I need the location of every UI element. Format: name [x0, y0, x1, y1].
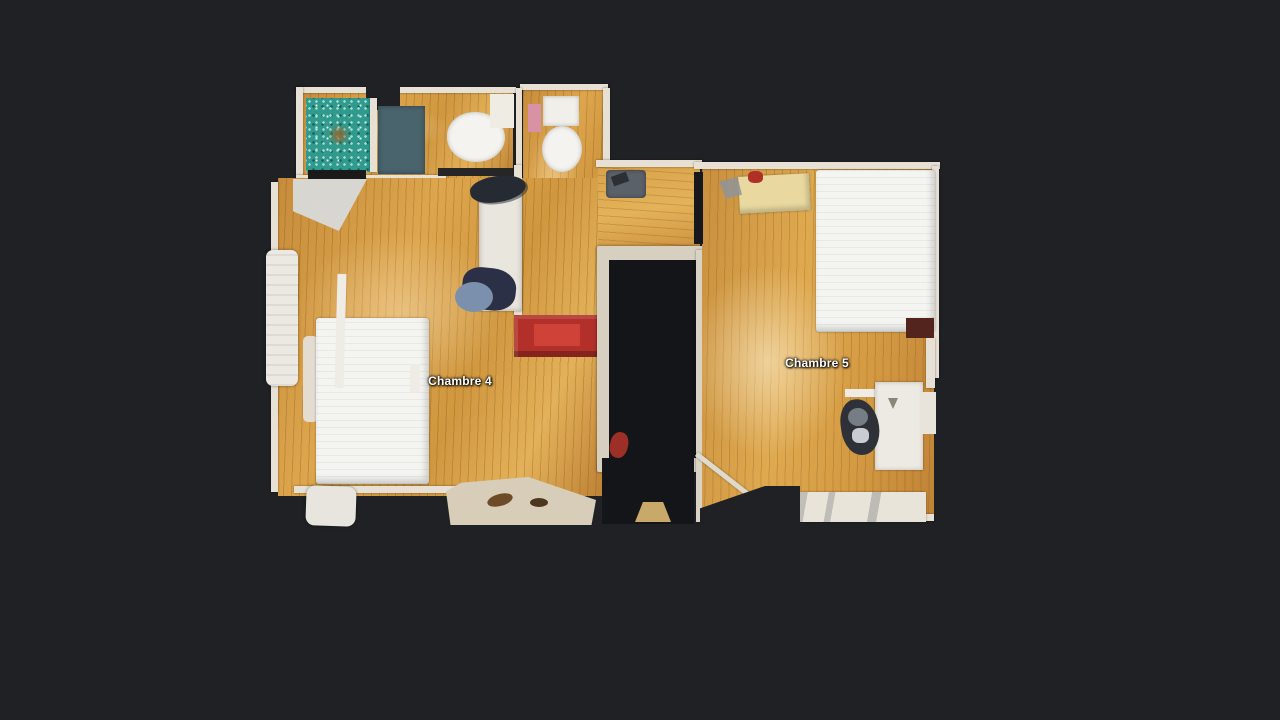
radiator — [305, 485, 356, 527]
shelf-radiator — [800, 492, 926, 522]
vanity-object — [530, 498, 548, 507]
shower-edge — [370, 98, 377, 172]
wall — [926, 338, 935, 388]
bed-mattress — [816, 170, 935, 332]
shower-tile-floor — [306, 98, 372, 172]
towel — [528, 104, 541, 132]
radiator — [266, 250, 298, 386]
wall — [520, 84, 608, 90]
sink — [543, 96, 579, 126]
bed-mattress — [316, 318, 429, 484]
wall — [596, 160, 702, 167]
room-label-chambre-4[interactable]: Chambre 4 — [412, 374, 508, 388]
wall — [694, 162, 940, 169]
scan-cutout — [694, 172, 703, 244]
desk — [875, 382, 923, 470]
red-chest-top — [534, 324, 580, 346]
room-label-chambre-5[interactable]: Chambre 5 — [769, 356, 865, 370]
stairwell-opening — [609, 260, 697, 458]
office-chair-cushion — [852, 428, 869, 443]
wall — [296, 87, 303, 183]
bath-mat — [378, 106, 425, 174]
desk-extension — [920, 392, 936, 434]
red-object — [748, 171, 763, 183]
chair-seat — [455, 282, 493, 312]
dark-object — [906, 318, 934, 338]
toilet-cistern — [490, 94, 514, 128]
office-chair-cushion — [848, 408, 868, 426]
wall-shadow — [308, 170, 366, 179]
toilet — [542, 126, 582, 172]
floorplan-canvas[interactable]: Chambre 4 Chambre 5 — [0, 0, 1280, 720]
wall — [296, 87, 516, 93]
